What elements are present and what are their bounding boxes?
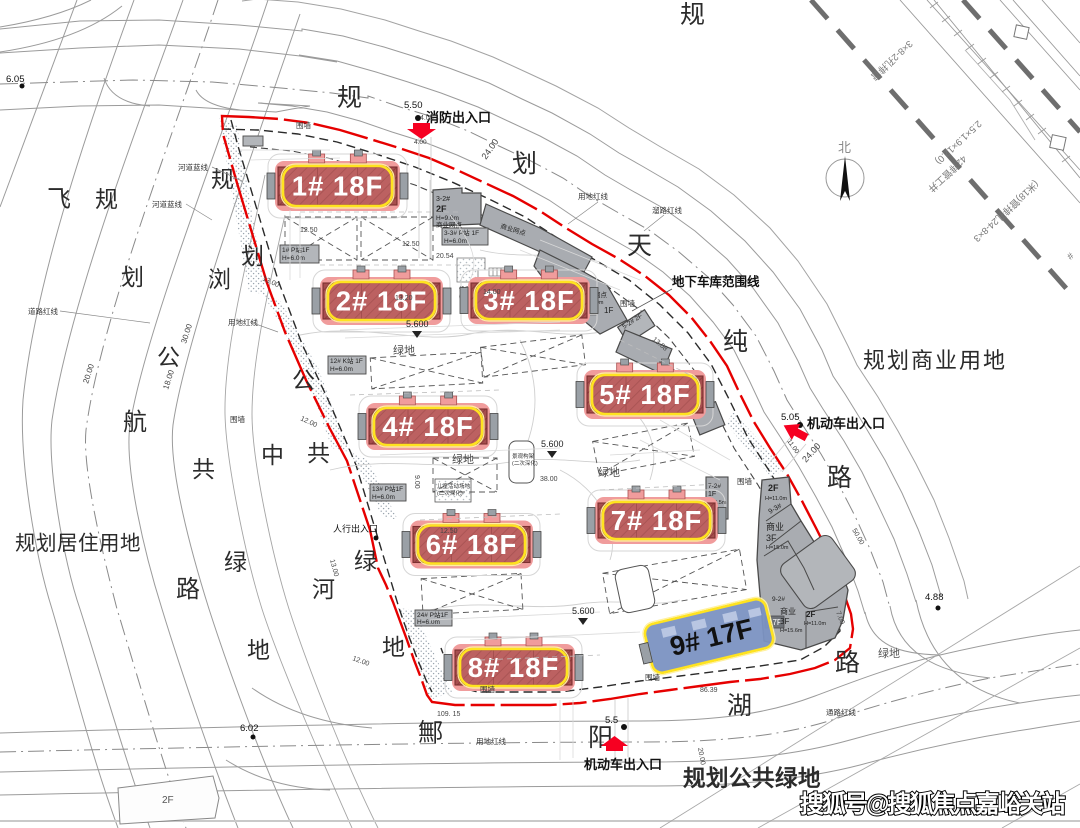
svg-text:道路红线: 道路红线 xyxy=(28,306,58,316)
svg-text:划: 划 xyxy=(121,265,144,290)
svg-text:绿: 绿 xyxy=(224,550,247,575)
svg-text:用地红线: 用地红线 xyxy=(578,191,608,201)
svg-text:2# 18F: 2# 18F xyxy=(336,286,428,317)
svg-text:机动车出入口: 机动车出入口 xyxy=(584,757,662,772)
svg-text:1# P站1F: 1# P站1F xyxy=(282,245,309,254)
svg-text:5.600: 5.600 xyxy=(572,606,595,616)
svg-text:纯: 纯 xyxy=(723,328,748,356)
svg-text:公: 公 xyxy=(292,368,315,393)
svg-text:4# 18F: 4# 18F xyxy=(382,411,474,442)
svg-text:飞: 飞 xyxy=(47,187,71,213)
svg-text:围墙: 围墙 xyxy=(230,414,245,424)
svg-text:H=15.6m: H=15.6m xyxy=(780,628,803,634)
svg-text:绿: 绿 xyxy=(354,549,377,574)
svg-text:13.20: 13.20 xyxy=(395,295,413,302)
svg-text:绿地: 绿地 xyxy=(598,465,620,479)
svg-text:人行出入口: 人行出入口 xyxy=(333,523,378,534)
svg-text:5.600: 5.600 xyxy=(406,319,429,329)
svg-text:鄦: 鄦 xyxy=(418,719,443,747)
svg-text:6.05: 6.05 xyxy=(6,74,25,85)
svg-text:消防出入口: 消防出入口 xyxy=(426,110,491,125)
svg-text:用地红线: 用地红线 xyxy=(476,736,506,746)
svg-text:河道蓝线: 河道蓝线 xyxy=(152,199,182,209)
svg-text:划: 划 xyxy=(241,244,264,269)
svg-text:H=6.0m: H=6.0m xyxy=(444,238,467,245)
svg-text:路: 路 xyxy=(176,576,200,603)
svg-text:围墙: 围墙 xyxy=(737,476,752,486)
svg-text:(二次深化): (二次深化) xyxy=(437,489,463,497)
svg-text:1F: 1F xyxy=(708,491,716,498)
svg-text:4.88: 4.88 xyxy=(925,592,944,603)
svg-text:13# P站1F: 13# P站1F xyxy=(372,484,403,493)
svg-text:3-3# P站 1F: 3-3# P站 1F xyxy=(444,228,479,237)
svg-text:路: 路 xyxy=(835,649,860,677)
svg-text:溜路红线: 溜路红线 xyxy=(652,205,682,215)
svg-text:109. 15: 109. 15 xyxy=(437,711,460,718)
svg-text:6.02: 6.02 xyxy=(240,723,259,734)
svg-text:38.00: 38.00 xyxy=(540,476,558,483)
svg-text:规: 规 xyxy=(95,187,118,212)
svg-text:用地红线: 用地红线 xyxy=(228,317,258,327)
svg-text:H=9.0m: H=9.0m xyxy=(436,215,459,222)
svg-text:景观构架: 景观构架 xyxy=(512,452,535,460)
svg-text:机动车出入口: 机动车出入口 xyxy=(807,416,885,431)
svg-text:通路红线: 通路红线 xyxy=(826,707,856,717)
svg-text:地: 地 xyxy=(247,638,270,663)
svg-text:河: 河 xyxy=(312,577,335,602)
svg-text:绿地: 绿地 xyxy=(393,343,415,357)
svg-text:5.5: 5.5 xyxy=(605,715,618,726)
svg-text:2F: 2F xyxy=(806,610,815,619)
svg-text:规: 规 xyxy=(211,167,234,192)
svg-text:12.50: 12.50 xyxy=(440,528,458,535)
svg-text:12# K站 1F: 12# K站 1F xyxy=(330,356,363,365)
svg-text:围墙: 围墙 xyxy=(645,672,660,682)
svg-text:航: 航 xyxy=(123,409,147,436)
svg-text:2F: 2F xyxy=(436,204,447,214)
svg-text:规划居住用地: 规划居住用地 xyxy=(15,532,141,555)
svg-text:14.00: 14.00 xyxy=(483,289,501,296)
svg-text:地: 地 xyxy=(382,635,405,660)
svg-text:5.50: 5.50 xyxy=(404,100,423,111)
svg-text:河道蓝线: 河道蓝线 xyxy=(178,162,208,172)
svg-text:H=15.0m: H=15.0m xyxy=(766,545,789,551)
svg-text:9.00: 9.00 xyxy=(413,475,420,489)
svg-text:规划商业用地: 规划商业用地 xyxy=(863,348,1007,373)
svg-text:3F: 3F xyxy=(766,533,777,543)
svg-text:共: 共 xyxy=(307,441,330,466)
svg-text:9-2#: 9-2# xyxy=(772,596,785,603)
svg-text:搜狐号@搜狐焦点嘉峪关站: 搜狐号@搜狐焦点嘉峪关站 xyxy=(800,790,1065,818)
svg-text:路: 路 xyxy=(827,464,852,492)
svg-text:绿地: 绿地 xyxy=(878,646,900,660)
svg-text:5# 18F: 5# 18F xyxy=(599,379,691,410)
svg-text:规: 规 xyxy=(680,1,705,29)
svg-text:H=11.0m: H=11.0m xyxy=(804,621,826,627)
svg-text:12.50: 12.50 xyxy=(300,227,318,234)
svg-text:规划公共绿地: 规划公共绿地 xyxy=(683,765,821,791)
svg-text:共: 共 xyxy=(192,457,215,482)
svg-text:24# P站1F: 24# P站1F xyxy=(417,610,448,619)
svg-text:3F: 3F xyxy=(780,617,789,626)
svg-text:7# 18F: 7# 18F xyxy=(611,505,703,536)
svg-text:北: 北 xyxy=(838,140,851,155)
svg-text:公: 公 xyxy=(157,345,180,370)
svg-text:2F: 2F xyxy=(768,483,779,493)
svg-text:商业: 商业 xyxy=(780,606,796,616)
svg-text:5.05: 5.05 xyxy=(781,412,800,423)
svg-text:5.600: 5.600 xyxy=(541,439,564,449)
svg-text:商业网点: 商业网点 xyxy=(436,220,463,229)
svg-text:中: 中 xyxy=(261,443,284,468)
svg-text:围墙: 围墙 xyxy=(620,298,635,308)
svg-text:H=6.0m: H=6.0m xyxy=(372,494,395,501)
svg-text:(二次深化): (二次深化) xyxy=(512,459,538,467)
svg-text:4.00: 4.00 xyxy=(414,139,427,146)
svg-text:地下车库范围线: 地下车库范围线 xyxy=(672,274,760,289)
svg-text:8# 18F: 8# 18F xyxy=(468,652,560,683)
svg-text:2F: 2F xyxy=(162,795,174,806)
svg-text:H=6.0m: H=6.0m xyxy=(330,366,353,373)
svg-text:商业: 商业 xyxy=(766,521,784,532)
svg-text:浏: 浏 xyxy=(208,267,231,292)
svg-text:20.54: 20.54 xyxy=(436,253,454,260)
svg-text:规: 规 xyxy=(337,84,362,112)
svg-text:1# 18F: 1# 18F xyxy=(292,171,384,202)
svg-text:3-2#: 3-2# xyxy=(436,196,450,203)
svg-text:H=11.0m: H=11.0m xyxy=(765,496,787,502)
svg-text:围墙: 围墙 xyxy=(480,684,495,694)
svg-text:绿地: 绿地 xyxy=(452,452,474,466)
svg-text:1F: 1F xyxy=(604,306,613,315)
svg-text:12.50: 12.50 xyxy=(402,241,420,248)
svg-text:围墙: 围墙 xyxy=(296,120,311,130)
svg-text:划: 划 xyxy=(512,150,537,178)
svg-text:H=6.0m: H=6.0m xyxy=(282,255,305,262)
svg-text:湖: 湖 xyxy=(727,692,752,720)
svg-text:儿童活动场地: 儿童活动场地 xyxy=(437,482,471,490)
svg-text:天: 天 xyxy=(627,233,652,260)
svg-text:86.39: 86.39 xyxy=(700,687,718,694)
svg-text:4.05: 4.05 xyxy=(420,115,434,122)
